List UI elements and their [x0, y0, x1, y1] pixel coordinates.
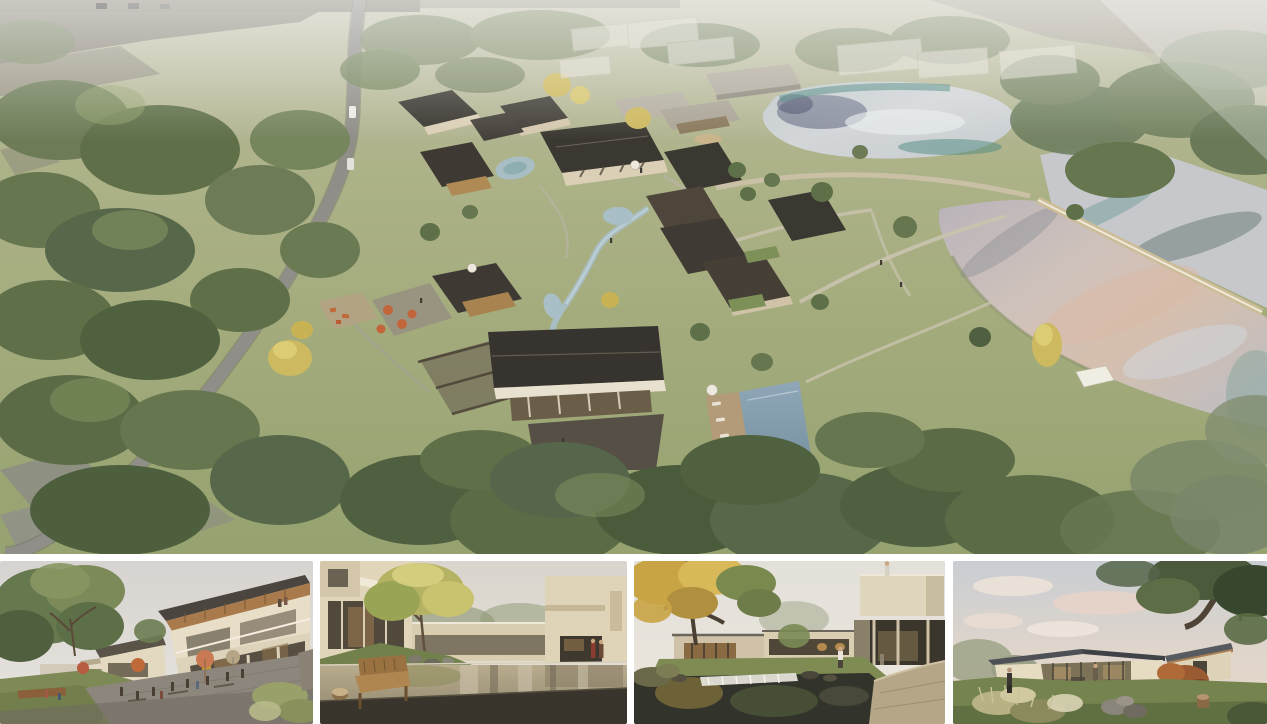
pond-cascade-svg [634, 561, 945, 724]
thumbnail-plaza-view [0, 561, 313, 724]
rock [1123, 704, 1147, 718]
haze-overlay [0, 0, 1267, 160]
rendering-board [0, 0, 1267, 724]
person [1007, 673, 1012, 685]
person [599, 644, 604, 658]
courtyard-pool-svg [320, 561, 627, 724]
hero-aerial-svg [0, 0, 1267, 554]
thumbnail-row [0, 561, 1267, 724]
thumbnail-courtyard-pool [320, 561, 627, 724]
umbrella [131, 658, 145, 672]
pavilion-dusk-svg [953, 561, 1267, 724]
plaza-svg [0, 561, 313, 724]
person-on-balcony [885, 565, 890, 576]
person [838, 651, 843, 660]
person-inside [1093, 668, 1098, 680]
thumbnail-pavilion-dusk [953, 561, 1267, 724]
hero-aerial-rendering [0, 0, 1267, 554]
umbrella [77, 662, 89, 674]
thumbnail-pond-cascade [634, 561, 945, 724]
car [347, 158, 354, 170]
person [880, 654, 884, 665]
person [591, 643, 596, 658]
